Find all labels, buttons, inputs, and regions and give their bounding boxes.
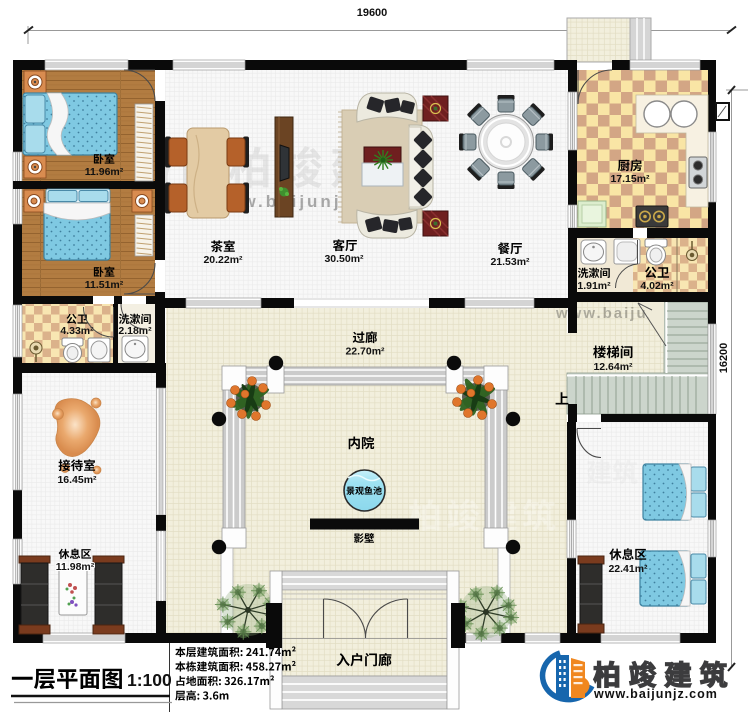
svg-text:4.02m²: 4.02m² xyxy=(640,280,674,292)
svg-text:19600: 19600 xyxy=(357,7,388,19)
svg-text:17.15m²: 17.15m² xyxy=(610,173,650,185)
svg-text:www.baijunjz.com: www.baijunjz.com xyxy=(593,687,718,701)
svg-text:1.91m²: 1.91m² xyxy=(577,280,611,292)
svg-text:16.45m²: 16.45m² xyxy=(57,474,97,486)
svg-text:21.53m²: 21.53m² xyxy=(490,256,530,268)
svg-text:1:100: 1:100 xyxy=(127,670,172,690)
svg-text:20.22m²: 20.22m² xyxy=(203,254,243,266)
svg-text:11.98m²: 11.98m² xyxy=(56,561,95,573)
svg-text:11.51m²: 11.51m² xyxy=(85,279,124,291)
svg-text:30.50m²: 30.50m² xyxy=(324,253,364,265)
svg-text:12.64m²: 12.64m² xyxy=(593,361,633,373)
svg-text:16200: 16200 xyxy=(718,343,730,374)
svg-text:22.70m²: 22.70m² xyxy=(345,346,385,358)
svg-text:22.41m²: 22.41m² xyxy=(608,563,648,575)
svg-text:4.33m²: 4.33m² xyxy=(60,325,94,337)
svg-text:11.96m²: 11.96m² xyxy=(85,166,124,178)
